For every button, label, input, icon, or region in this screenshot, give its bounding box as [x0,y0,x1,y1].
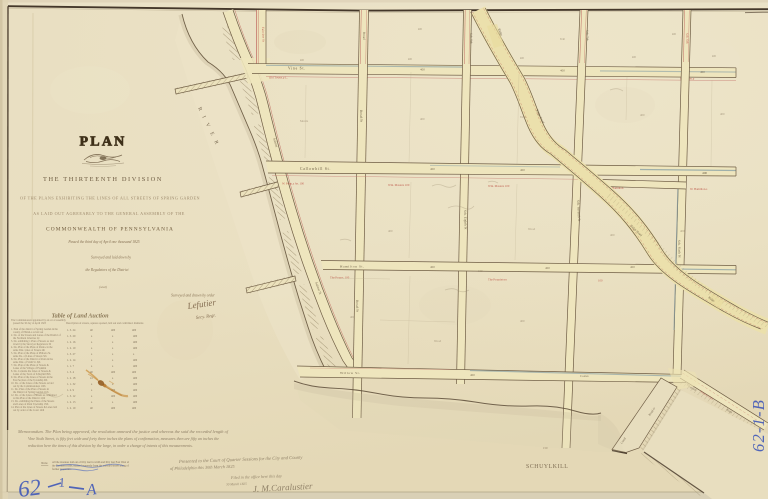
svg-text:Sch. 6th: Sch. 6th [685,33,689,44]
svg-text:1. 2. 18: 1. 2. 18 [67,377,76,380]
svg-text:Sch. Eighth St: Sch. Eighth St [463,210,468,230]
svg-text:OF THE PLANS EXHIBITING THE LI: OF THE PLANS EXHIBITING THE LINES OF ALL… [20,196,200,201]
svg-text:Vine St.: Vine St. [288,67,306,71]
svg-text:Broad: Broad [362,32,366,40]
svg-text:400: 400 [388,229,393,233]
svg-text:1. 3. 24: 1. 3. 24 [67,329,76,332]
svg-text:400: 400 [520,319,525,323]
svg-text:The Proprietors: The Proprietors [488,278,508,282]
svg-text:THE THIRTEENTH DIVISION: THE THIRTEENTH DIVISION [43,176,163,183]
svg-text:400: 400 [720,112,725,116]
svg-text:Hamilton St.: Hamilton St. [340,265,365,269]
svg-text:Old Towns.p L.: Old Towns.p L. [269,76,288,80]
svg-text:1. 3. 4: 1. 3. 4 [67,371,75,374]
svg-text:400: 400 [680,229,685,233]
svg-text:Callowhill St.: Callowhill St. [300,167,331,171]
svg-text:1. 3. 20: 1. 3. 20 [67,335,76,338]
svg-text:400: 400 [111,407,116,410]
svg-text:Surveyed and laid down by: Surveyed and laid down by [91,256,131,260]
svg-text:400: 400 [133,389,138,392]
svg-text:400: 400 [111,395,116,398]
svg-text:W. Penn.a Av. 100: W. Penn.a Av. 100 [282,182,304,186]
svg-text:400: 400 [420,117,425,121]
svg-text:Description of streets, square: Description of streets, squares opened, … [66,322,143,325]
svg-text:COMMONWEALTH OF PENNSYLVANIA: COMMONWEALTH OF PENNSYLVANIA [46,227,174,233]
svg-text:Tall.t: Tall.t [520,115,526,119]
svg-text:1. 2. 19: 1. 2. 19 [67,407,76,410]
svg-text:Coates: Coates [580,374,589,378]
svg-text:Trall: Trall [560,38,565,41]
svg-text:400: 400 [702,171,707,175]
svg-text:Wm. Masters 100: Wm. Masters 100 [488,184,510,188]
svg-text:AS LAID OUT AGREEABLY TO THE G: AS LAID OUT AGREEABLY TO THE GENERAL ASS… [33,211,185,216]
svg-text:Sch. 7th: Sch. 7th [585,30,590,41]
svg-text:400: 400 [111,329,116,332]
svg-text:Broad St: Broad St [355,300,359,312]
svg-text:Note.: Note. [40,461,48,465]
svg-text:1. 2. 13: 1. 2. 13 [67,401,76,404]
svg-text:1. 1. 7: 1. 1. 7 [67,365,75,368]
svg-text:150: 150 [478,269,483,273]
svg-text:400: 400 [630,265,635,269]
svg-text:400: 400 [470,373,475,377]
svg-text:62-1-B: 62-1-B [749,399,768,452]
svg-text:400: 400 [111,371,116,374]
svg-text:400: 400 [520,168,525,172]
svg-text:Wm. Masters 100: Wm. Masters 100 [388,183,410,187]
svg-text:400: 400 [133,335,138,338]
svg-text:1. 2. 10: 1. 2. 10 [67,347,76,350]
svg-text:400: 400 [700,70,705,74]
svg-text:out by order of the Court 14th: out by order of the Court 14th [13,409,45,412]
svg-text:400: 400 [133,377,138,380]
svg-text:Morris: Morris [300,119,309,123]
svg-text:(seal): (seal) [99,285,108,289]
svg-text:400: 400 [560,69,565,73]
svg-text:A: A [85,481,97,499]
svg-text:400: 400 [133,395,138,398]
svg-text:1. 3. 27: 1. 3. 27 [67,353,76,356]
svg-text:400: 400 [420,68,425,72]
svg-text:W. Hamilton.s: W. Hamilton.s [690,187,708,191]
svg-text:Wood: Wood [434,339,442,343]
svg-text:Sch. Sixth St: Sch. Sixth St [677,240,682,258]
svg-text:150: 150 [543,446,548,450]
svg-text:400: 400 [545,266,550,270]
svg-text:1. 2. 9: 1. 2. 9 [67,389,75,392]
svg-text:400: 400 [132,407,137,410]
svg-text:Surveyed and drawn by order: Surveyed and drawn by order [171,294,215,298]
svg-text:SCHUYLKILL: SCHUYLKILL [526,464,568,470]
svg-text:Passed the third day of April: Passed the third day of April one thousa… [67,240,139,244]
svg-text:62: 62 [17,474,43,499]
svg-text:Willow St.: Willow St. [340,371,361,375]
svg-text:100: 100 [598,279,603,283]
svg-text:400: 400 [132,329,137,332]
svg-text:400: 400 [430,167,435,171]
svg-text:30 March 1825: 30 March 1825 [226,482,247,487]
svg-text:1. 3. 12: 1. 3. 12 [67,395,76,398]
svg-text:400: 400 [350,315,355,319]
svg-text:Sch. 8th: Sch. 8th [469,33,473,44]
svg-text:Wood: Wood [528,227,536,231]
svg-text:400: 400 [133,383,138,386]
svg-text:400: 400 [133,401,138,404]
svg-text:Fairview St: Fairview St [261,27,266,42]
svg-text:the Regulators of the District: the Regulators of the District [85,268,129,272]
svg-text:Broad St: Broad St [359,110,363,122]
svg-text:400: 400 [430,265,435,269]
svg-text:The Proprs. 100: The Proprs. 100 [330,276,350,280]
svg-text:400: 400 [133,359,138,362]
svg-text:400: 400 [133,341,138,344]
svg-text:1. 1. 32: 1. 1. 32 [67,383,76,386]
svg-text:1. 2. 14: 1. 2. 14 [67,359,76,362]
svg-text:1. 2. 16: 1. 2. 16 [67,341,76,344]
svg-text:PLAN: PLAN [80,135,127,150]
svg-text:400: 400 [640,113,645,117]
svg-text:400: 400 [133,347,138,350]
svg-text:400: 400 [610,233,615,237]
svg-text:400: 400 [132,371,137,374]
svg-text:passed the 3d day of April 182: passed the 3d day of April 1825 [13,322,47,325]
svg-text:400: 400 [133,365,138,368]
